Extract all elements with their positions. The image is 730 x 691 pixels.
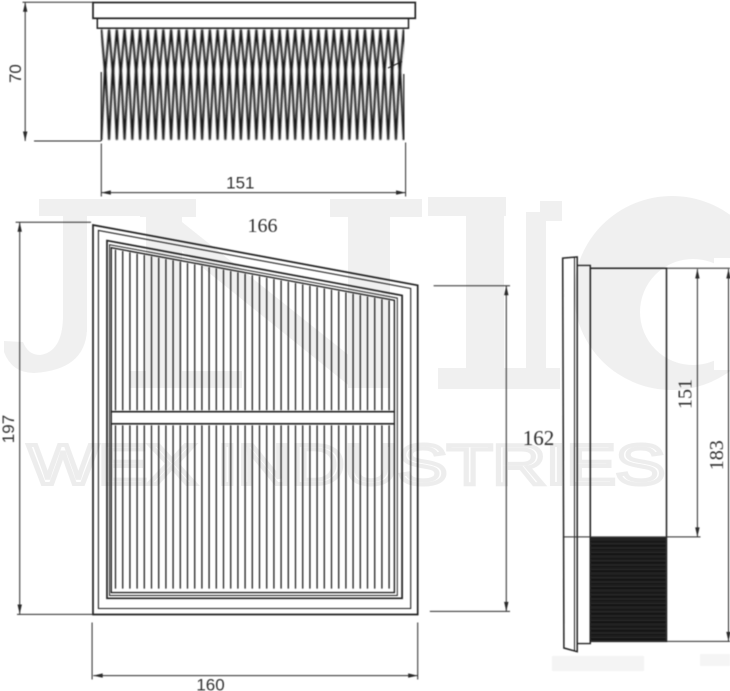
svg-text:70: 70 bbox=[6, 64, 25, 83]
svg-text:162: 162 bbox=[523, 426, 555, 450]
svg-text:166: 166 bbox=[248, 215, 278, 237]
svg-text:183: 183 bbox=[706, 440, 728, 470]
svg-text:151: 151 bbox=[226, 173, 254, 192]
svg-text:160: 160 bbox=[196, 676, 224, 691]
svg-text:197: 197 bbox=[0, 415, 18, 443]
svg-text:151: 151 bbox=[675, 379, 697, 409]
